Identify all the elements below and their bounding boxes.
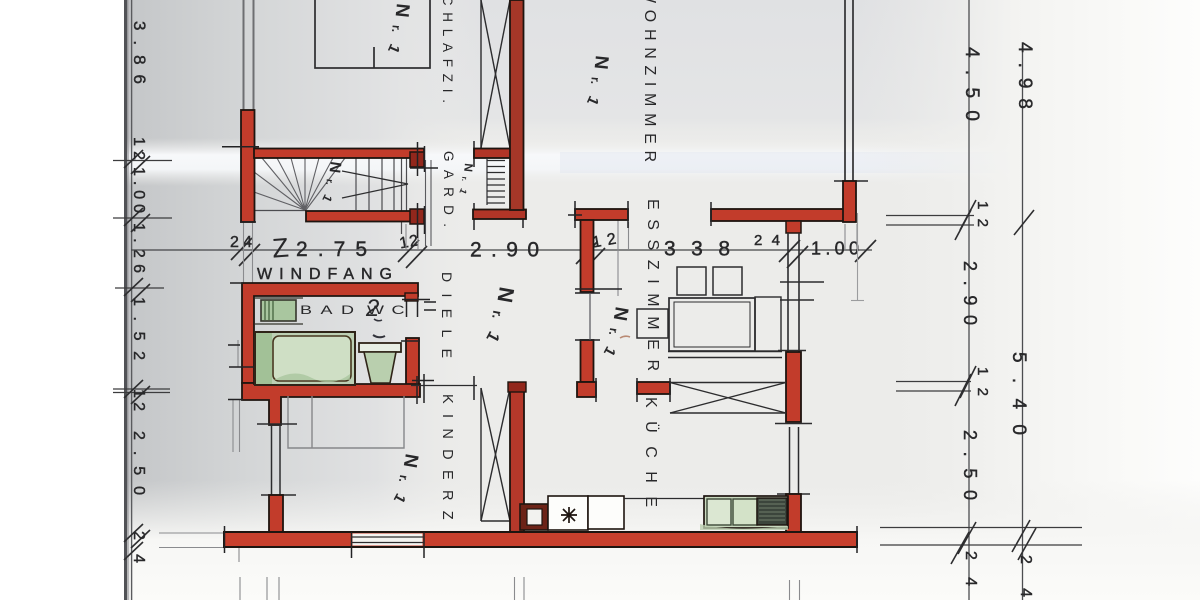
svg-text:r.: r. (389, 24, 404, 33)
svg-text:N: N (461, 163, 475, 173)
svg-text:2: 2 (365, 295, 379, 322)
svg-text:N: N (391, 2, 413, 18)
svg-text:338: 338 (664, 238, 730, 261)
svg-text:1.00: 1.00 (811, 239, 859, 259)
svg-text:N: N (325, 160, 343, 174)
svg-text:BAD: BAD (300, 304, 354, 317)
svg-text:r.: r. (588, 76, 603, 85)
svg-text:N: N (590, 54, 612, 70)
svg-text:12: 12 (398, 232, 420, 252)
svg-text:1.00: 1.00 (130, 167, 147, 213)
svg-text:1.26: 1.26 (130, 223, 147, 273)
svg-text:Z: Z (271, 233, 290, 264)
svg-text:r.: r. (460, 176, 469, 181)
